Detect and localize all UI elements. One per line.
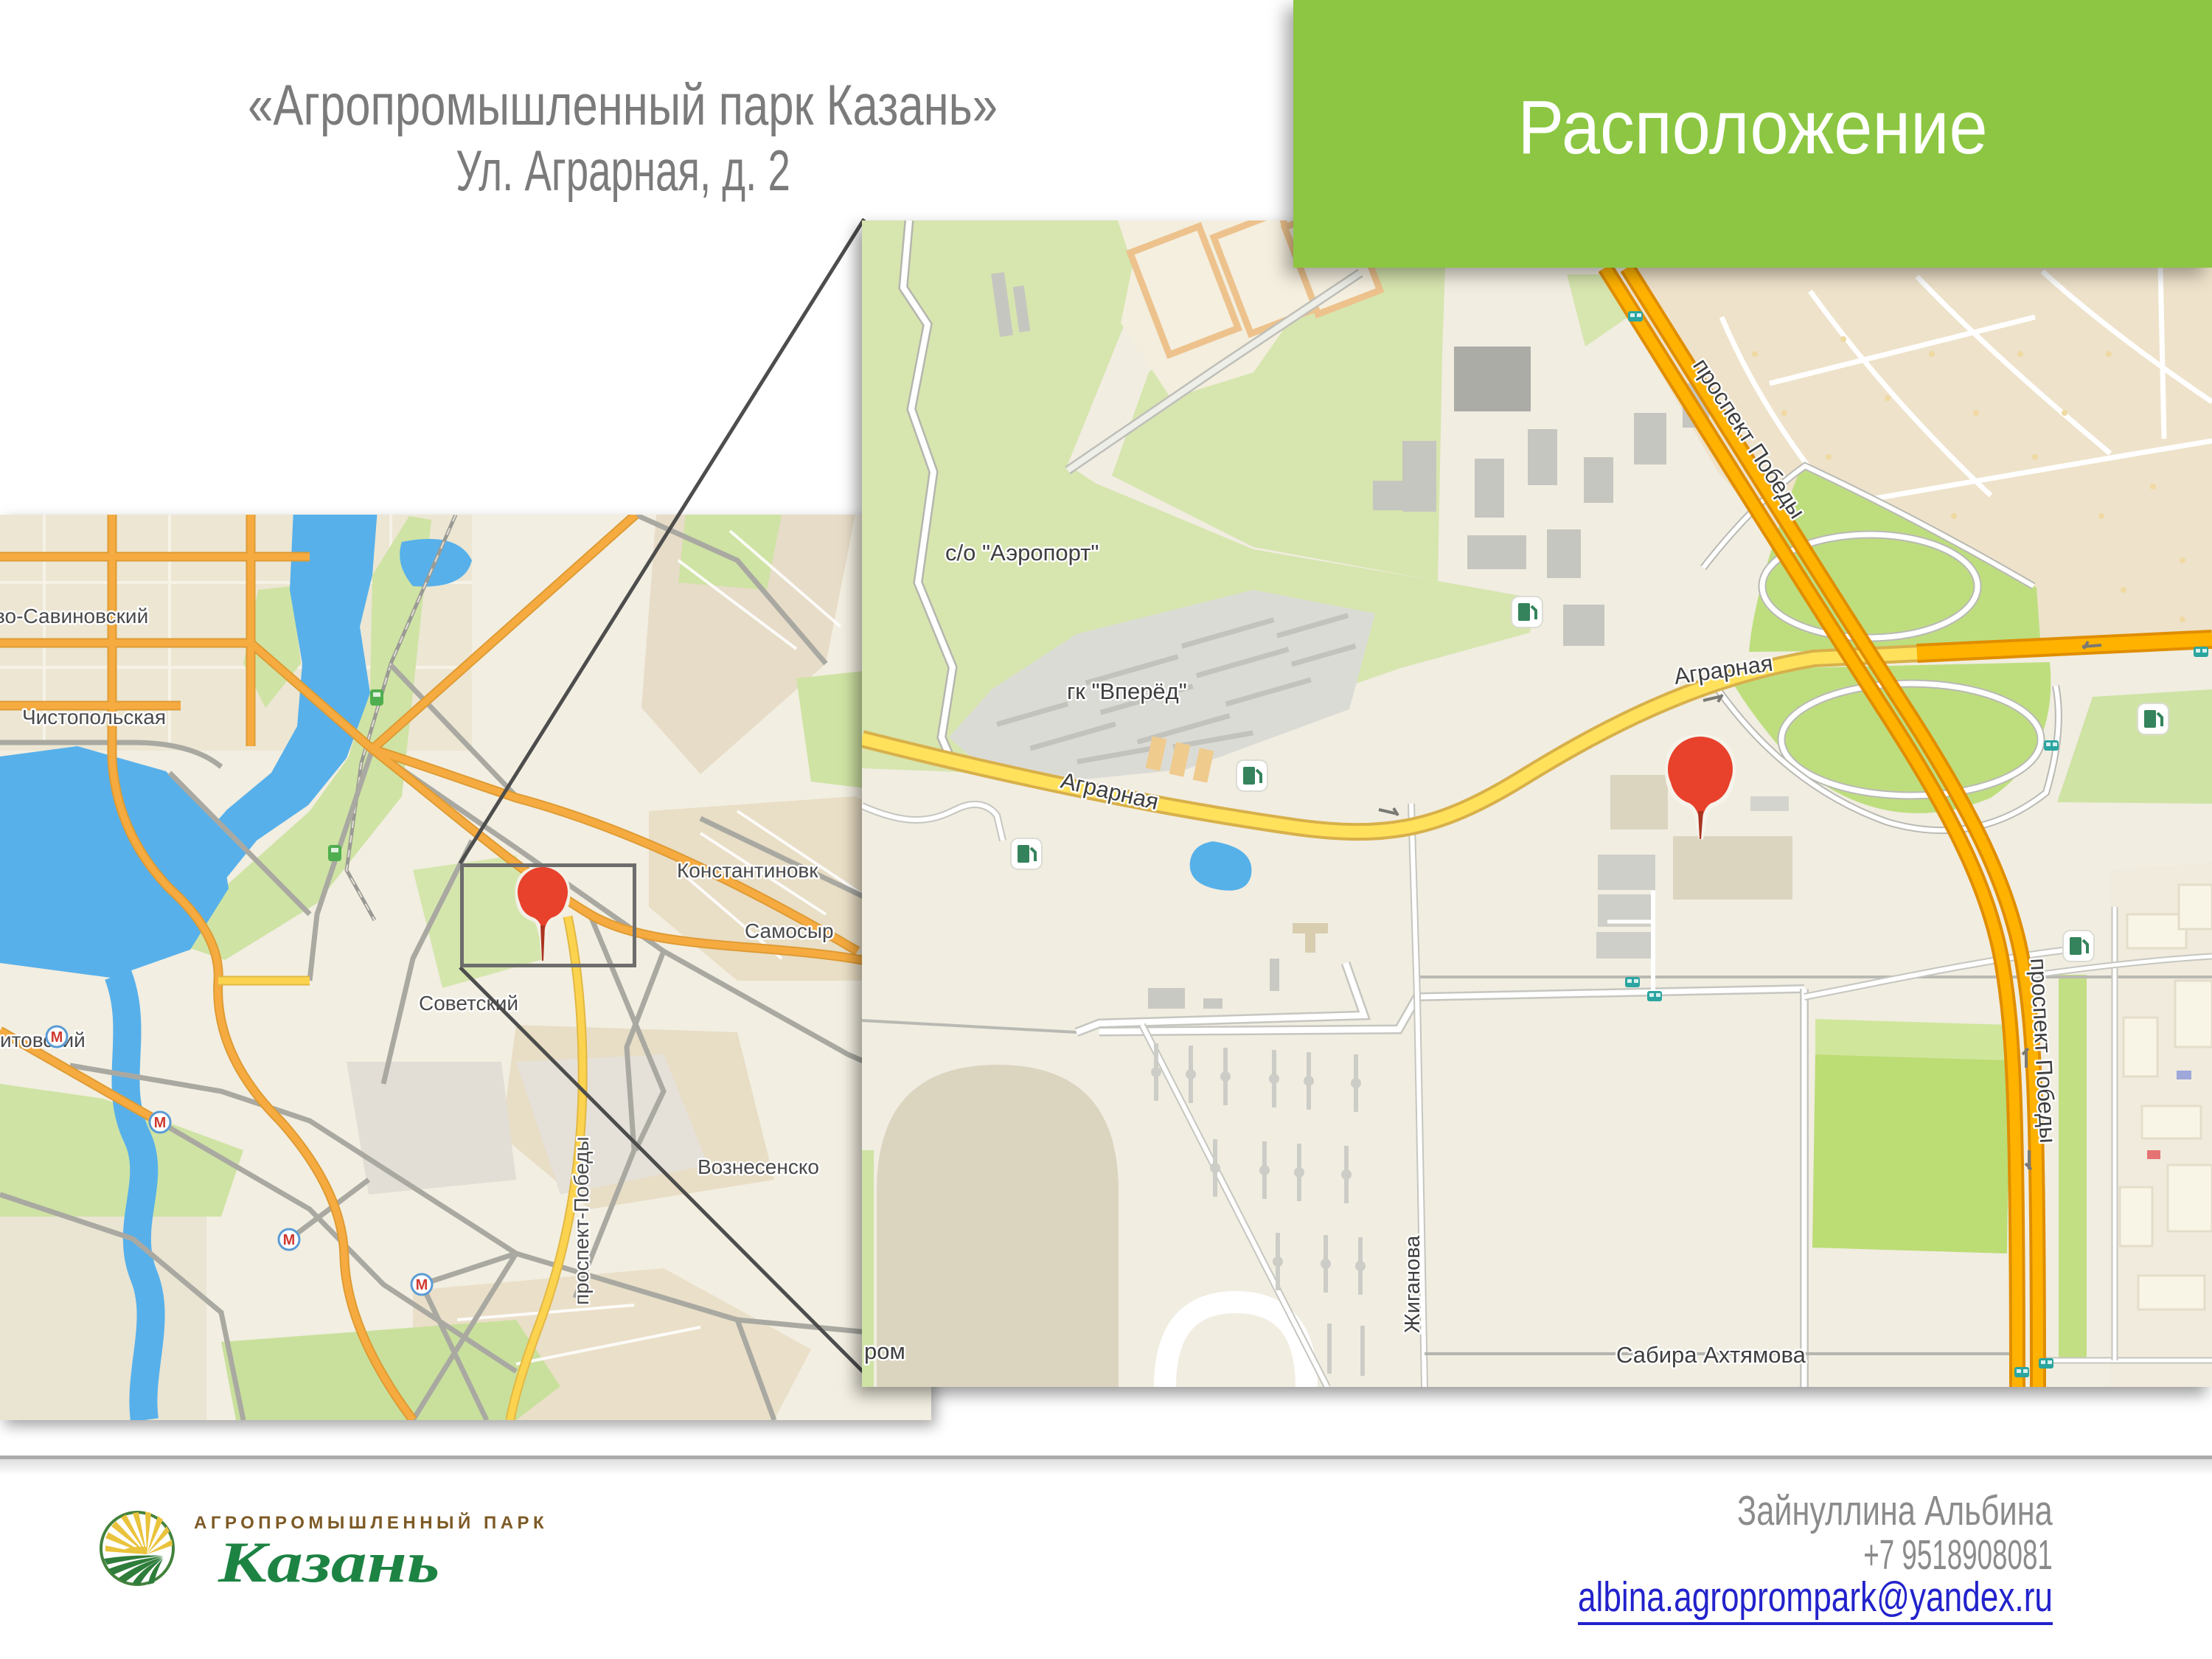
svg-text:Сабира Ахтямова: Сабира Ахтямова [1616,1342,1806,1368]
svg-text:Жиганова: Жиганова [1401,1235,1425,1333]
svg-text:с/о "Аэропорт": с/о "Аэропорт" [945,540,1099,566]
svg-text:гк "Вперёд": гк "Вперёд" [1067,678,1187,704]
svg-text:ром: ром [864,1338,905,1364]
